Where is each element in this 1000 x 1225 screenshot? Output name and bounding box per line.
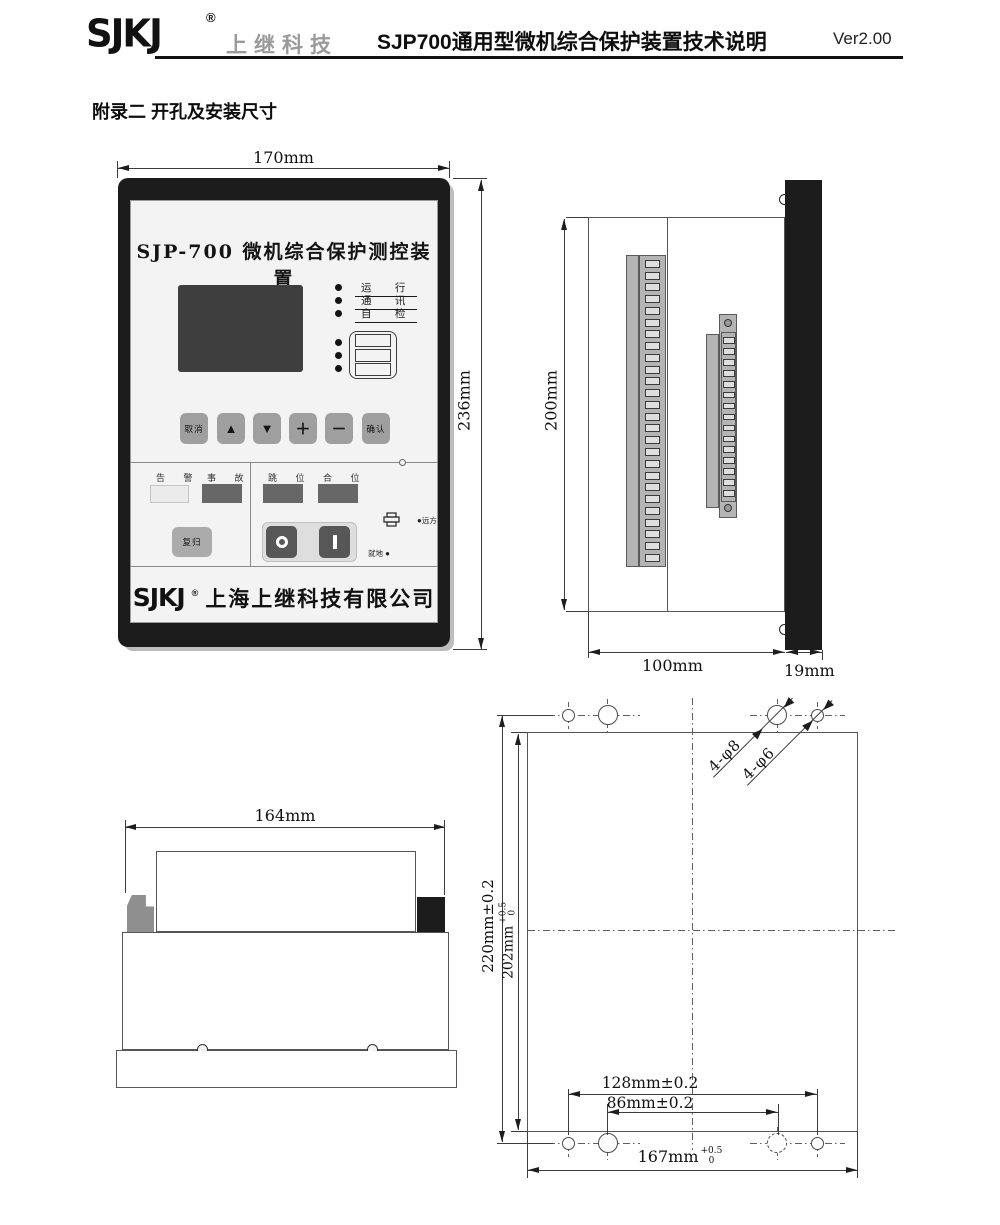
dim-170-ext-right [449, 161, 450, 178]
doc-version: Ver2.00 [833, 29, 892, 49]
dim-128-arrow-right-icon [805, 1091, 816, 1097]
company-name: 上继科技 [226, 29, 338, 59]
fault-lamp [202, 484, 242, 503]
dim-100-line [588, 652, 785, 653]
dim-170-label: 170mm [118, 148, 449, 167]
leader-phi8-arrow-icon [781, 697, 794, 710]
terminal-block-large-slots [639, 255, 666, 567]
doc-title: SJP700通用型微机综合保护装置技术说明 [377, 26, 767, 56]
confirm-button: 确认 [362, 413, 390, 444]
switch-off-button [266, 526, 297, 558]
dim-200-arrow-bottom-icon [561, 599, 567, 610]
dim-167-arrow-left-icon [528, 1167, 539, 1173]
dim-164-label: 164mm [125, 806, 445, 825]
dim-167-value: 167mm [638, 1147, 699, 1166]
terminal-small-screw-top-icon [724, 319, 732, 327]
dim-200-line [564, 219, 565, 610]
up-button: ▲ [217, 413, 245, 444]
switch-on-icon [333, 535, 337, 549]
dim-100-arrow-left-icon [589, 649, 600, 655]
lcd-screen [178, 285, 303, 372]
header: SJKJ ® 上继科技 SJP700通用型微机综合保护装置技术说明 Ver2.0… [0, 0, 1000, 70]
dim-200-arrow-top-icon [561, 219, 567, 230]
local-label: 就地 [368, 549, 383, 558]
terminal-block-large-body [626, 255, 639, 567]
dim-236-label: 236mm [455, 361, 474, 441]
dim-202-arrow-top-icon [515, 734, 521, 745]
brand-logo: SJKJ [86, 11, 161, 56]
bottom-holes-centerline-right [750, 1143, 845, 1144]
dim-220-label: 220mm±0.2 [479, 861, 497, 991]
dim-86-ext-right [778, 1104, 779, 1135]
panel-divider-bottom [130, 566, 438, 567]
registered-mark: ® [206, 10, 216, 25]
bottom-clip-right [417, 897, 445, 932]
reset-button: 复归 [172, 527, 212, 557]
close-lamp [318, 484, 358, 503]
close-label: 合 位 [323, 471, 368, 484]
cutout-horizontal-centerline [528, 930, 898, 931]
header-rule [155, 56, 903, 59]
side-front-panel [785, 180, 822, 650]
trip-lamp [263, 484, 303, 503]
dim-86-line [607, 1112, 778, 1113]
section-title: 附录二 开孔及安装尺寸 [92, 98, 277, 124]
remote-label: 远方 [422, 516, 437, 525]
mount-hole-phi6 [811, 1137, 824, 1150]
dim-86-label: 86mm±0.2 [540, 1094, 760, 1112]
dim-220-ext-top [497, 715, 553, 716]
dim-220-ext-bottom [497, 1143, 553, 1144]
dim-236-ext-bottom [453, 649, 487, 650]
dim-167-ext-right [857, 1132, 858, 1178]
terminal-block-small-slots [721, 332, 736, 502]
faceplate-footer: SJKJ® 上海上继科技有限公司 [130, 583, 438, 613]
comm-led-icon [335, 297, 342, 304]
dim-19-ext-right [822, 650, 823, 660]
dim-128-label: 128mm±0.2 [540, 1074, 760, 1092]
dim-164-ext-left [125, 820, 126, 893]
indicator-led-2-icon [335, 352, 342, 359]
cancel-button: 取消 [180, 413, 208, 444]
dim-202-arrow-bottom-icon [515, 1119, 521, 1130]
dim-236-ext-top [453, 178, 487, 179]
terminal-small-screw-bottom-icon [724, 504, 732, 512]
indicator-led-3-icon [335, 365, 342, 372]
panel-divider-circle-icon [399, 459, 406, 466]
side-case-outline [588, 217, 785, 612]
dim-202-value: 202mm [501, 926, 517, 979]
dim-220-arrow-top-icon [499, 716, 505, 727]
run-led-icon [335, 284, 342, 291]
dim-100-label: 100mm [642, 656, 703, 675]
indicator-window [349, 331, 397, 379]
dim-86-arrow-right-icon [766, 1109, 777, 1115]
dim-164-line [125, 827, 445, 828]
dim-236-line [481, 180, 482, 649]
top-holes-centerline-right [750, 715, 845, 716]
printer-icon [383, 512, 400, 527]
leader-phi6-arrow-icon [820, 699, 833, 712]
dim-220-arrow-bottom-icon [499, 1131, 505, 1142]
side-case-inner-line [667, 217, 668, 612]
dim-167-tol-sub: 0 [701, 1157, 723, 1166]
faceplate-company: 上海上继科技有限公司 [205, 583, 435, 613]
selfcheck-led-icon [335, 310, 342, 317]
bottom-rail [116, 1050, 457, 1088]
dim-167-line [527, 1170, 858, 1171]
plus-button: ＋ [289, 413, 317, 444]
alarm-lamp [150, 485, 189, 503]
switch-off-icon [276, 536, 288, 548]
trip-label: 跳 位 [268, 471, 313, 484]
dim-170-line [118, 168, 449, 169]
terminal-block-small-body [706, 334, 719, 508]
dim-100-arrow-right-icon [773, 649, 784, 655]
mount-hole-phi6 [562, 709, 575, 722]
leader-phi6-arrow-icon [802, 717, 815, 730]
dim-200-ext-top [566, 217, 588, 218]
selfcheck-led-label: 自 检 [355, 306, 417, 323]
bottom-clip-left [127, 895, 154, 932]
dim-167-label: 167mm+0.50 [560, 1147, 800, 1166]
dim-167-arrow-right-icon [846, 1167, 857, 1173]
dim-236-arrow-bottom-icon [478, 638, 484, 649]
dim-236-arrow-top-icon [478, 180, 484, 191]
dim-128-ext-right [817, 1089, 818, 1135]
faceplate-reg-mark: ® [192, 588, 199, 598]
fault-label: 事 故 [207, 471, 252, 484]
down-button: ▼ [253, 413, 281, 444]
dim-202-label: 202mm+0.50 [500, 885, 519, 995]
alarm-label: 告 警 [156, 471, 201, 484]
manual-page: SJKJ ® 上继科技 SJP700通用型微机综合保护装置技术说明 Ver2.0… [0, 0, 1000, 1225]
minus-button: － [325, 413, 353, 444]
local-led-icon: ● [385, 549, 390, 558]
dim-200-ext-bottom [566, 611, 588, 612]
remote-indicator: ●远方 [417, 515, 437, 526]
dim-19-label: 19mm [784, 661, 835, 680]
dim-202-ext-top [511, 732, 527, 733]
switch-on-button [319, 526, 350, 558]
mount-hole-phi8 [598, 705, 618, 725]
dim-202-ext-bottom [511, 1131, 527, 1132]
bottom-screw-left-icon [197, 1044, 208, 1051]
dim-202-tol-sub: 0 [509, 902, 518, 924]
panel-divider-top [130, 462, 438, 463]
dim-164-ext-right [444, 820, 445, 895]
indicator-led-1-icon [335, 339, 342, 346]
faceplate-logo: SJKJ [133, 583, 185, 612]
dim-200-label: 200mm [542, 361, 561, 441]
bottom-screw-right-icon [367, 1044, 378, 1051]
bottom-case-outline [156, 851, 416, 932]
local-indicator: 就地 ● [368, 548, 390, 559]
bottom-flange [122, 932, 449, 1050]
